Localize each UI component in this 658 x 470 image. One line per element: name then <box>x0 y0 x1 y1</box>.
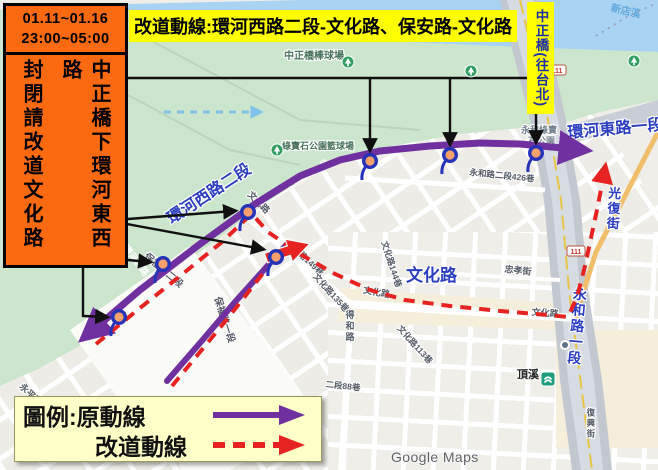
map-label: 光復街 <box>605 186 621 232</box>
map-label: 文化路113巷 <box>395 324 434 365</box>
map-label: 環河西路二段 <box>165 162 255 228</box>
legend-row-original: 圖例:原動線 <box>23 400 313 430</box>
date-range: 01.11~01.16 <box>23 9 109 29</box>
map-label: 文化路 <box>406 267 457 285</box>
map-label: 復興街 <box>586 408 595 440</box>
map-label: 保福路一段 <box>212 296 236 344</box>
map-label: 文化路 <box>362 286 390 300</box>
map-label: 得和路 <box>344 310 353 343</box>
original-route-arrow <box>209 403 309 427</box>
map-label: 文化路135巷 <box>311 272 350 314</box>
map-label: 環河東路一段 <box>567 118 658 143</box>
map-label: 石公園 <box>528 137 555 146</box>
map-label: 中正橋棒球場 <box>284 52 344 63</box>
map-label: 文化路 <box>531 308 559 319</box>
map-label: 忠孝街 <box>504 265 532 277</box>
closure-message-right: 中正橋下環河東西路 <box>56 59 114 259</box>
closure-message: 封閉請改道文化路 中正橋下環河東西路 <box>6 55 125 261</box>
map-label: 永和綠寶 <box>521 126 557 135</box>
legend-original-label: 圖例:原動線 <box>23 398 146 432</box>
map-label: 永和路二段426巷 <box>469 168 535 184</box>
closure-message-left: 封閉請改道文化路 <box>17 59 46 259</box>
map-label: 綠寶石公園籃球場 <box>282 142 354 151</box>
time-range: 23:00~05:00 <box>21 29 109 49</box>
legend-row-detour: 改道動線 <box>23 430 313 460</box>
traffic-notice-map: 環河西路二段環河東路一段文化路永和路一段光復街新店溪中正橋棒球場綠寶石公園籃球場… <box>0 0 658 470</box>
map-label: 環河西路一段 <box>283 158 331 193</box>
zhongzheng-bridge-label: 中正橋(往台北) <box>527 2 554 114</box>
legend-detour-label: 改道動線 <box>95 428 187 462</box>
map-label: 二段88巷 <box>325 380 361 393</box>
legend: 圖例:原動線 改道動線 <box>14 396 322 462</box>
closure-notice-box: 01.11~01.16 23:00~05:00 封閉請改道文化路 中正橋下環河東… <box>3 3 128 268</box>
map-label: 文化路144巷 <box>380 240 403 289</box>
map-label: 新店溪 <box>610 4 642 21</box>
detour-title-banner: 改道動線:環河西路二段-文化路、保安路-文化路 <box>129 10 517 42</box>
detour-route-arrow <box>209 433 309 457</box>
map-label: 永和路一段 <box>566 286 588 367</box>
closure-dates: 01.11~01.16 23:00~05:00 <box>6 6 125 55</box>
map-label: 頂溪 <box>517 370 539 382</box>
map-label: 文化路 <box>245 190 271 216</box>
